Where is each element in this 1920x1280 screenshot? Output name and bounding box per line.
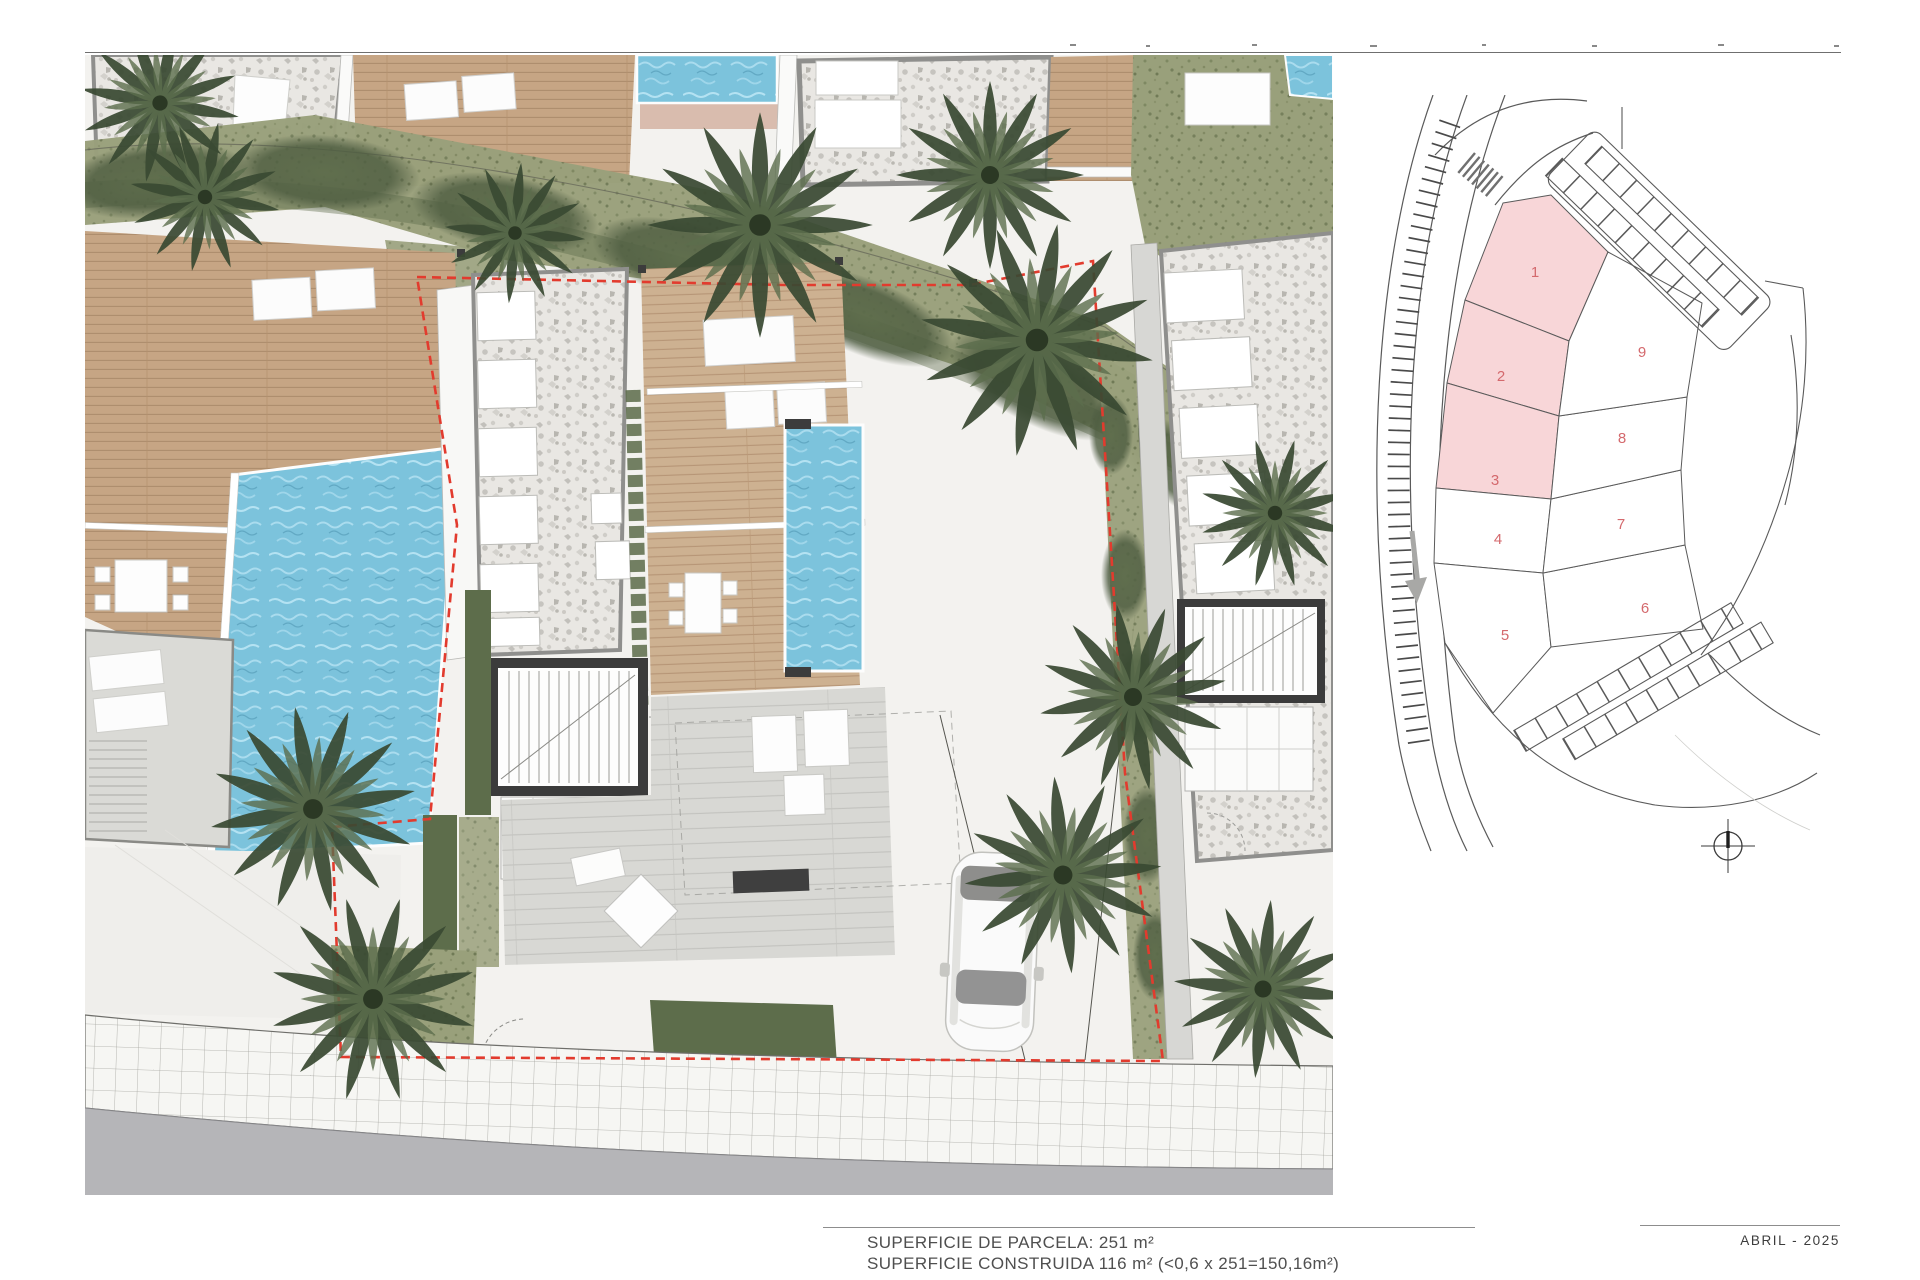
built-area-note: SUPERFICIE CONSTRUIDA 116 m² (<0,6 x 251… [867,1254,1339,1275]
top-rule [85,52,1841,53]
hedge [465,590,491,815]
parcel-area-note: SUPERFICIE DE PARCELA: 251 m² [867,1233,1339,1254]
bench [733,869,810,894]
parcel-number: 3 [1491,472,1499,489]
swimming-pool-corner [1285,55,1333,99]
parcel-number: 1 [1531,264,1539,281]
north-compass-icon [1701,819,1755,873]
stair-core [493,663,643,791]
parcel-number: 2 [1497,368,1505,385]
plan-sheet: 1 2 3 4 5 6 7 8 9 [0,0,1920,1280]
key-plan: 1 2 3 4 5 6 7 8 9 [1355,95,1825,885]
crosswalk [1458,153,1502,196]
date-label: ABRIL - 2025 [1640,1233,1840,1248]
parcel-number: 4 [1494,531,1502,548]
parcel-number: 7 [1617,516,1625,533]
parcel-4 [1434,488,1551,573]
notes-rule [823,1227,1475,1228]
parcel-number: 9 [1638,344,1646,361]
parcel-number: 6 [1641,600,1649,617]
swimming-pool [785,425,863,671]
site-plan [85,55,1333,1195]
parcel-number: 8 [1618,430,1626,447]
parcel-5 [1434,563,1551,713]
direction-arrow-icon [1405,531,1427,603]
area-notes: SUPERFICIE DE PARCELA: 251 m² SUPERFICIE… [867,1233,1339,1274]
swimming-pool-top [637,55,777,103]
skylight [815,100,901,148]
parcel-number: 5 [1501,627,1509,644]
skylight [816,61,898,95]
date-rule [1640,1225,1840,1226]
